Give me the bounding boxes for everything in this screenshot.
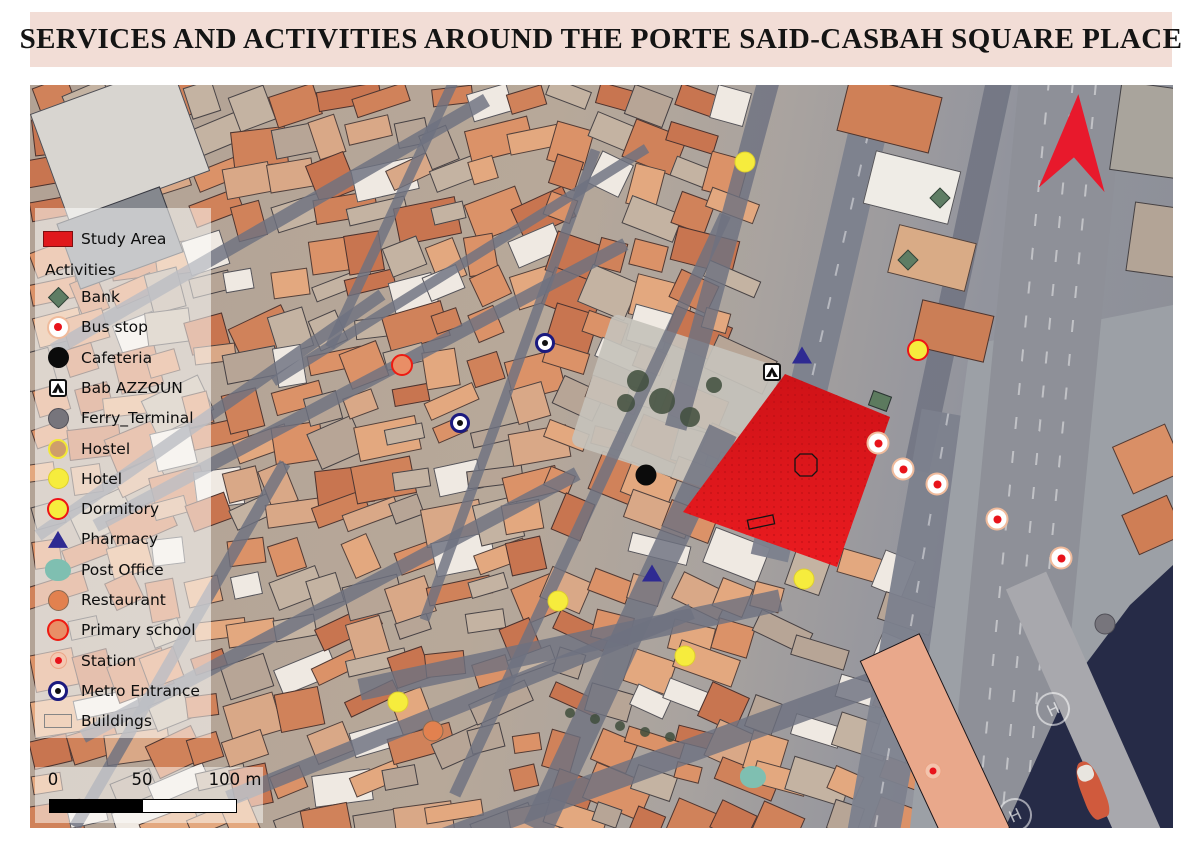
legend-item-label: Post Office bbox=[81, 561, 164, 579]
legend-swatch-cell bbox=[35, 531, 81, 548]
legend-swatch-cell bbox=[35, 652, 81, 669]
legend-swatch-cell bbox=[35, 590, 81, 611]
marker-bus-stop bbox=[926, 473, 949, 496]
legend-swatch-cell bbox=[35, 347, 81, 368]
dormitory-icon bbox=[47, 498, 69, 520]
ferry-terminal-icon bbox=[48, 408, 69, 429]
scale-tick-label: 0 bbox=[48, 770, 59, 789]
legend-swatch-cell bbox=[35, 408, 81, 429]
marker-center-dot bbox=[1057, 554, 1065, 562]
marker-center-dot bbox=[874, 439, 882, 447]
legend-item-label: Pharmacy bbox=[81, 530, 158, 548]
station-icon bbox=[50, 652, 67, 669]
marker-hotel bbox=[675, 646, 696, 667]
marker-dormitory bbox=[907, 339, 929, 361]
legend-item-hotel: Hotel bbox=[35, 464, 211, 494]
bank-icon bbox=[47, 286, 68, 307]
scale-tick-label: 100 m bbox=[209, 770, 262, 789]
marker-station bbox=[925, 763, 942, 780]
legend-panel: Study AreaActivitiesBankBus stopCafeteri… bbox=[35, 208, 211, 738]
legend-swatch-cell bbox=[35, 619, 81, 641]
legend-item-pharmacy: Pharmacy bbox=[35, 524, 211, 554]
marker-center-dot bbox=[54, 323, 62, 331]
marker-center-dot bbox=[899, 465, 907, 473]
legend-swatch-cell bbox=[35, 681, 81, 701]
legend-item-dormitory: Dormitory bbox=[35, 494, 211, 524]
legend-item-post-office: Post Office bbox=[35, 555, 211, 585]
legend-item-hostel: Hostel bbox=[35, 434, 211, 464]
tent-glyph bbox=[52, 383, 64, 393]
marker-restaurant bbox=[423, 721, 444, 742]
marker-pharmacy bbox=[642, 565, 662, 582]
marker-bab-azzoun bbox=[763, 363, 781, 381]
legend-item-label: Hostel bbox=[81, 440, 130, 458]
marker-metro bbox=[450, 413, 470, 433]
legend-item-label: Restaurant bbox=[81, 591, 166, 609]
legend-item-primary-school: Primary school bbox=[35, 615, 211, 645]
marker-pharmacy bbox=[792, 347, 812, 364]
legend-item-label: Hotel bbox=[81, 470, 122, 488]
marker-primary-school bbox=[391, 354, 413, 376]
scale-bar: 050100 m bbox=[35, 767, 263, 823]
legend-item-label: Bus stop bbox=[81, 318, 148, 336]
marker-center-dot bbox=[55, 657, 62, 664]
legend-item-bank: Bank bbox=[35, 282, 211, 312]
scale-tick-label: 50 bbox=[132, 770, 153, 789]
bab-azzoun-icon bbox=[49, 379, 67, 397]
legend-item-label: Bank bbox=[81, 288, 120, 306]
marker-hotel bbox=[388, 692, 409, 713]
marker-bus-stop bbox=[1050, 547, 1073, 570]
map-canvas: HH Study AreaActivitiesBankBus stopCafet… bbox=[30, 85, 1173, 828]
marker-bus-stop bbox=[986, 508, 1009, 531]
pharmacy-icon bbox=[48, 531, 68, 548]
legend-swatch-cell bbox=[35, 559, 81, 581]
marker-center-dot bbox=[993, 515, 1001, 523]
legend-swatch-cell bbox=[35, 439, 81, 459]
legend-item-label: Dormitory bbox=[81, 500, 159, 518]
title-banner: SERVICES AND ACTIVITIES AROUND THE PORTE… bbox=[30, 12, 1172, 67]
legend-item-label: Metro Entrance bbox=[81, 682, 200, 700]
marker-hotel bbox=[548, 591, 569, 612]
scale-bar-rule bbox=[49, 799, 237, 813]
bus-stop-icon bbox=[47, 316, 70, 339]
marker-bus-stop bbox=[867, 432, 890, 455]
page: SERVICES AND ACTIVITIES AROUND THE PORTE… bbox=[0, 0, 1200, 849]
legend-swatch-cell bbox=[35, 379, 81, 397]
marker-post-office bbox=[740, 766, 766, 788]
legend-swatch-cell bbox=[35, 290, 81, 305]
marker-center-dot bbox=[55, 688, 61, 694]
marker-bank bbox=[929, 187, 950, 208]
marker-ferry-terminal bbox=[1095, 614, 1116, 635]
legend-item-cafeteria: Cafeteria bbox=[35, 343, 211, 373]
legend-item-ferry-terminal: Ferry_Terminal bbox=[35, 403, 211, 433]
legend-item-label: Buildings bbox=[81, 712, 152, 730]
legend-item-study-area: Study Area bbox=[35, 224, 211, 254]
legend-item-label: Bab AZZOUN bbox=[81, 379, 183, 397]
marker-center-dot bbox=[933, 480, 941, 488]
legend-item-label: Study Area bbox=[81, 230, 166, 248]
legend-swatch-cell bbox=[35, 714, 81, 728]
legend-activities-header: Activities bbox=[45, 261, 116, 279]
hostel-icon bbox=[48, 439, 68, 459]
legend-item-label: Station bbox=[81, 652, 136, 670]
post-office-icon bbox=[45, 559, 71, 581]
buildings-icon bbox=[44, 714, 72, 728]
legend-item-restaurant: Restaurant bbox=[35, 585, 211, 615]
marker-hotel bbox=[735, 152, 756, 173]
tent-glyph bbox=[766, 367, 778, 377]
legend-item-label: Ferry_Terminal bbox=[81, 409, 194, 427]
legend-item-buildings: Buildings bbox=[35, 706, 211, 736]
legend-item-label: Primary school bbox=[81, 621, 196, 639]
legend-item-bab-azzoun: Bab AZZOUN bbox=[35, 373, 211, 403]
hotel-icon bbox=[48, 468, 69, 489]
marker-bank bbox=[897, 249, 918, 270]
study-area-icon bbox=[43, 231, 73, 247]
metro-icon bbox=[48, 681, 68, 701]
legend-item-label: Cafeteria bbox=[81, 349, 152, 367]
marker-center-dot bbox=[930, 768, 937, 775]
marker-cafeteria bbox=[636, 465, 657, 486]
marker-bus-stop bbox=[892, 458, 915, 481]
legend-swatch-cell bbox=[35, 498, 81, 520]
legend-swatch-cell bbox=[35, 468, 81, 489]
legend-swatch-cell bbox=[35, 231, 81, 247]
primary-school-icon bbox=[47, 619, 69, 641]
legend-swatch-cell bbox=[35, 316, 81, 339]
legend-item-bus-stop: Bus stop bbox=[35, 312, 211, 342]
marker-center-dot bbox=[542, 340, 548, 346]
cafeteria-icon bbox=[48, 347, 69, 368]
marker-hotel bbox=[794, 569, 815, 590]
map-title: SERVICES AND ACTIVITIES AROUND THE PORTE… bbox=[20, 23, 1183, 56]
marker-center-dot bbox=[457, 420, 463, 426]
legend-item-station: Station bbox=[35, 646, 211, 676]
marker-metro bbox=[535, 333, 555, 353]
legend-item-metro: Metro Entrance bbox=[35, 676, 211, 706]
restaurant-icon bbox=[48, 590, 69, 611]
